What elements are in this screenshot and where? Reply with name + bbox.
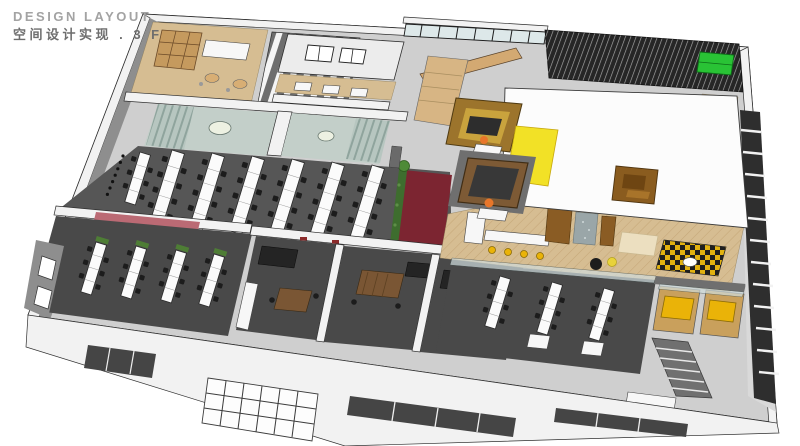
bar-stool (537, 253, 544, 260)
meeting-table (209, 122, 231, 135)
palm-plant (399, 161, 410, 172)
beanbag (608, 258, 617, 267)
wood-feature-wall (600, 216, 616, 246)
floorplan-render (0, 0, 800, 446)
wood-feature-wall (545, 208, 572, 244)
person (480, 136, 488, 144)
page-title: DESIGN LAYOUT (13, 8, 163, 26)
gray-feature-panel (573, 212, 598, 245)
wood-desk (274, 288, 312, 312)
sofa (258, 246, 298, 268)
person (485, 199, 494, 208)
cream-rug (618, 232, 658, 256)
bar-stool (489, 247, 496, 254)
round-table (205, 74, 219, 83)
beanbag (590, 258, 602, 270)
focus-table-row (272, 34, 404, 110)
bar-stool (521, 251, 528, 258)
sofa (405, 262, 430, 278)
yellow-booth-seat (661, 296, 694, 320)
wood-desk (356, 270, 404, 298)
meeting-table (318, 131, 334, 141)
bar-stool (505, 249, 512, 256)
yellow-booth-seat (707, 300, 736, 322)
page-subtitle: 空间设计实现 . 3 F (13, 26, 163, 44)
round-table (233, 80, 247, 89)
round-table (683, 258, 697, 267)
design-layout-page: DESIGN LAYOUT 空间设计实现 . 3 F (0, 0, 800, 446)
title-block: DESIGN LAYOUT 空间设计实现 . 3 F (13, 8, 163, 43)
